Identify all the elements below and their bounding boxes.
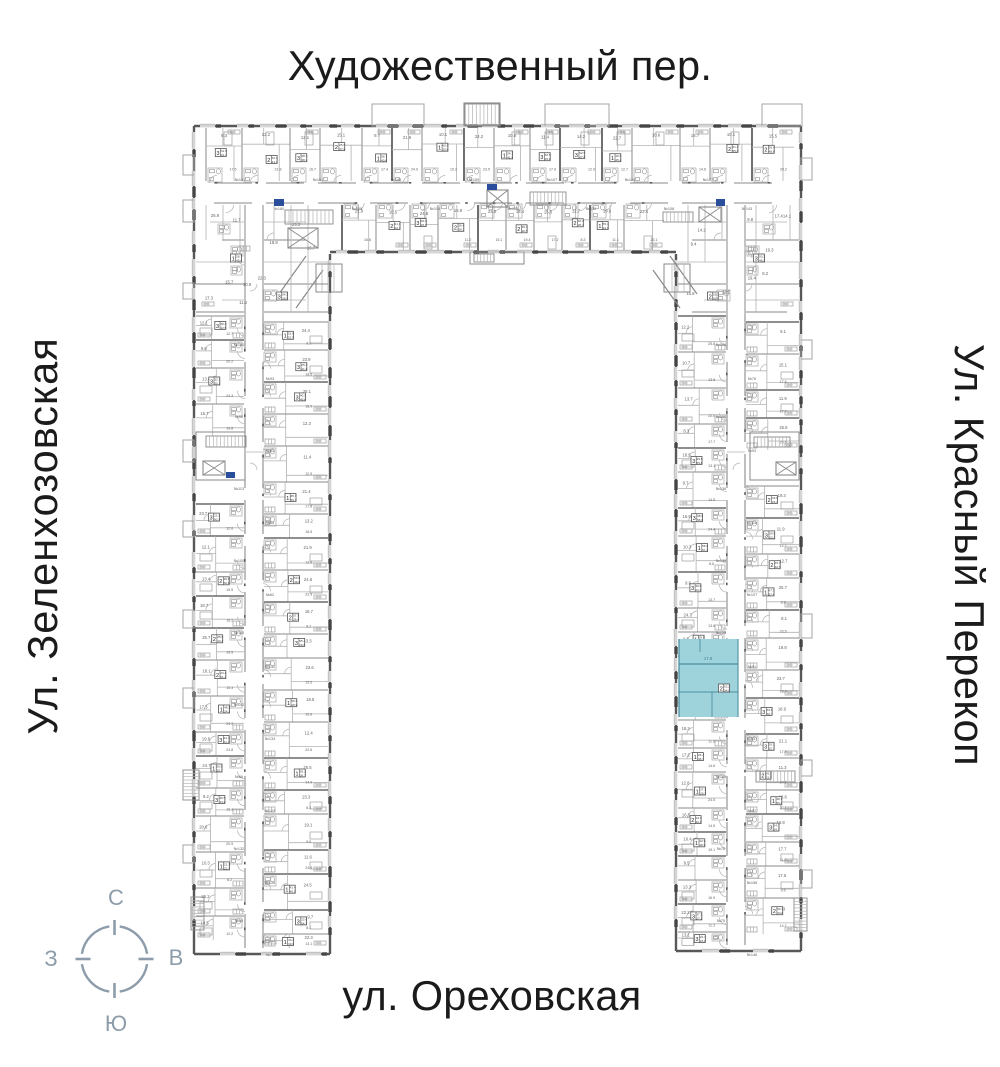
- svg-text:16.1: 16.1: [226, 807, 233, 811]
- svg-text:19.3: 19.3: [765, 248, 774, 253]
- svg-text:8.1: 8.1: [781, 616, 787, 621]
- svg-text:21.1: 21.1: [779, 738, 788, 743]
- svg-text:24.6: 24.6: [304, 577, 313, 582]
- svg-text:9.4: 9.4: [691, 241, 697, 246]
- svg-text:8.2: 8.2: [762, 271, 768, 276]
- svg-text:19.8: 19.8: [226, 427, 233, 431]
- svg-text:9.3: 9.3: [221, 133, 227, 138]
- svg-text:13.1: 13.1: [682, 933, 691, 938]
- svg-text:17.9: 17.9: [549, 167, 556, 171]
- svg-text:15.8: 15.8: [686, 291, 695, 296]
- svg-text:14.6: 14.6: [699, 167, 706, 171]
- svg-text:19.8: 19.8: [779, 645, 788, 650]
- svg-text:12.1: 12.1: [200, 320, 209, 325]
- svg-text:№148: №148: [391, 178, 401, 182]
- svg-text:3: 3: [215, 798, 218, 804]
- svg-text:39.7: 39.7: [773, 828, 779, 832]
- svg-text:9.5: 9.5: [781, 889, 786, 893]
- svg-text:3: 3: [764, 745, 767, 751]
- svg-text:12.1: 12.1: [202, 545, 211, 550]
- svg-text:29.6: 29.6: [299, 643, 305, 647]
- svg-text:19.4: 19.4: [524, 238, 531, 242]
- svg-text:11.2: 11.2: [239, 300, 248, 305]
- svg-text:54.5: 54.5: [724, 688, 730, 692]
- svg-text:19.1: 19.1: [304, 823, 313, 828]
- svg-text:№146: №146: [747, 953, 757, 957]
- svg-text:№142: №142: [234, 703, 244, 707]
- svg-text:23.9: 23.9: [302, 357, 311, 362]
- svg-text:9.7: 9.7: [683, 481, 689, 486]
- svg-text:24.8: 24.8: [420, 211, 429, 216]
- svg-text:1: 1: [296, 771, 299, 777]
- svg-text:10.7: 10.7: [682, 361, 691, 366]
- svg-text:2: 2: [290, 578, 293, 584]
- svg-text:56.7: 56.7: [290, 498, 296, 502]
- svg-text:25.8: 25.8: [545, 157, 551, 161]
- svg-text:57.4: 57.4: [702, 548, 708, 552]
- svg-text:11.4: 11.4: [541, 135, 550, 140]
- svg-text:№107: №107: [547, 178, 557, 182]
- svg-text:18.9: 18.9: [305, 405, 312, 409]
- svg-text:№132: №132: [586, 207, 596, 211]
- svg-text:2: 2: [219, 579, 222, 585]
- svg-text:3: 3: [210, 379, 213, 385]
- svg-text:2: 2: [454, 226, 457, 232]
- svg-text:32.7: 32.7: [767, 712, 773, 716]
- svg-text:23.9: 23.9: [488, 209, 497, 214]
- svg-text:15.5: 15.5: [305, 681, 312, 685]
- svg-text:11.3: 11.3: [779, 765, 788, 770]
- svg-text:№83: №83: [266, 449, 274, 453]
- svg-text:13.7: 13.7: [685, 397, 694, 402]
- svg-text:1: 1: [764, 590, 767, 596]
- svg-text:19.3: 19.3: [778, 493, 787, 498]
- svg-text:12.3: 12.3: [303, 421, 312, 426]
- svg-text:Ю: Ю: [105, 1011, 127, 1036]
- svg-text:2: 2: [691, 818, 694, 824]
- svg-text:19.5: 19.5: [226, 651, 233, 655]
- svg-text:24.5: 24.5: [708, 798, 715, 802]
- svg-text:24.7: 24.7: [695, 588, 701, 592]
- svg-text:22.7: 22.7: [613, 136, 622, 141]
- svg-text:1: 1: [287, 701, 290, 707]
- svg-text:23.7: 23.7: [777, 676, 786, 681]
- svg-text:3: 3: [278, 294, 281, 300]
- svg-text:11.6: 11.6: [708, 739, 715, 743]
- svg-text:32.3: 32.3: [769, 747, 775, 751]
- svg-text:14.1: 14.1: [783, 214, 792, 219]
- svg-text:3: 3: [295, 641, 298, 647]
- svg-text:20.1: 20.1: [780, 806, 787, 810]
- svg-text:№132: №132: [234, 847, 244, 851]
- svg-text:1: 1: [377, 156, 380, 162]
- svg-text:9.7: 9.7: [307, 914, 313, 919]
- svg-text:46.5: 46.5: [775, 565, 781, 569]
- svg-text:2: 2: [773, 909, 776, 915]
- svg-text:1: 1: [698, 546, 701, 552]
- svg-text:44.6: 44.6: [603, 226, 609, 230]
- svg-text:59.4: 59.4: [776, 801, 782, 805]
- svg-text:18.8: 18.8: [306, 697, 315, 702]
- svg-text:2: 2: [709, 294, 712, 300]
- svg-text:9.7: 9.7: [374, 133, 380, 138]
- svg-text:№108: №108: [664, 207, 674, 211]
- svg-text:16.2: 16.2: [226, 619, 233, 623]
- svg-text:17.5: 17.5: [230, 167, 237, 171]
- svg-text:11.2: 11.2: [465, 238, 472, 242]
- svg-text:49.4: 49.4: [236, 258, 242, 262]
- svg-text:3: 3: [219, 738, 222, 744]
- svg-text:17.8: 17.8: [704, 656, 713, 661]
- svg-text:2: 2: [335, 145, 338, 151]
- svg-text:22.2: 22.2: [262, 132, 271, 137]
- svg-text:9.5: 9.5: [684, 860, 690, 865]
- svg-text:13.1: 13.1: [305, 942, 312, 946]
- svg-text:22.9: 22.9: [305, 593, 312, 597]
- svg-text:17.6: 17.6: [780, 380, 787, 384]
- svg-text:1: 1: [694, 755, 697, 761]
- svg-text:3: 3: [691, 586, 694, 592]
- svg-text:1: 1: [438, 146, 441, 152]
- svg-text:54.7: 54.7: [301, 921, 307, 925]
- svg-text:42.5: 42.5: [220, 326, 226, 330]
- svg-text:10.3: 10.3: [202, 861, 211, 866]
- svg-text:28.9: 28.9: [291, 703, 297, 707]
- svg-text:12.7: 12.7: [780, 544, 787, 548]
- svg-text:20.9: 20.9: [226, 842, 233, 846]
- svg-text:22.3: 22.3: [305, 935, 314, 940]
- svg-text:15.1: 15.1: [337, 133, 346, 138]
- svg-text:9.2: 9.2: [203, 794, 209, 799]
- svg-text:24.5: 24.5: [304, 883, 313, 888]
- svg-text:8.3: 8.3: [581, 238, 586, 242]
- svg-text:18.9: 18.9: [780, 689, 787, 693]
- svg-text:3: 3: [540, 155, 543, 161]
- svg-text:12.7: 12.7: [572, 208, 581, 213]
- svg-text:2: 2: [289, 616, 292, 622]
- svg-text:12.7: 12.7: [621, 167, 628, 171]
- svg-text:34.8: 34.8: [777, 911, 783, 915]
- svg-text:Ул. Красный Перекоп: Ул. Красный Перекоп: [946, 344, 993, 766]
- svg-text:3: 3: [692, 459, 695, 465]
- svg-text:18.9: 18.9: [778, 707, 787, 712]
- svg-text:№91: №91: [748, 665, 756, 669]
- svg-text:17.2: 17.2: [682, 752, 691, 757]
- svg-text:№116: №116: [747, 521, 757, 525]
- svg-text:3: 3: [296, 395, 299, 401]
- svg-text:12.1: 12.1: [301, 135, 310, 140]
- svg-text:2: 2: [764, 148, 767, 154]
- svg-text:3: 3: [692, 914, 695, 920]
- svg-text:27.2: 27.2: [696, 916, 702, 920]
- svg-text:17.3: 17.3: [199, 705, 208, 710]
- svg-text:11.9: 11.9: [779, 396, 788, 401]
- svg-text:12.7: 12.7: [226, 332, 233, 336]
- svg-text:23.5: 23.5: [483, 167, 490, 171]
- svg-text:25.3: 25.3: [578, 223, 584, 227]
- svg-text:16.7: 16.7: [691, 133, 700, 138]
- svg-text:38.1: 38.1: [301, 158, 307, 162]
- svg-text:14.2: 14.2: [698, 227, 707, 232]
- svg-text:8.2: 8.2: [306, 625, 311, 629]
- svg-text:23.6: 23.6: [700, 939, 706, 943]
- svg-text:51.4: 51.4: [220, 675, 226, 679]
- svg-text:1: 1: [220, 864, 223, 870]
- svg-text:№98: №98: [235, 415, 243, 419]
- svg-text:1: 1: [284, 940, 287, 946]
- svg-text:Художественный пер.: Художественный пер.: [288, 42, 712, 89]
- svg-text:25.8: 25.8: [708, 342, 715, 346]
- svg-text:10.6: 10.6: [305, 713, 312, 717]
- svg-text:17.3: 17.3: [205, 296, 214, 301]
- svg-text:2: 2: [770, 563, 773, 569]
- svg-text:13.3: 13.3: [683, 884, 692, 889]
- svg-text:12.2: 12.2: [226, 932, 233, 936]
- svg-text:19.1: 19.1: [708, 848, 715, 852]
- svg-text:22.2: 22.2: [681, 910, 690, 915]
- svg-text:16.9: 16.9: [683, 514, 692, 519]
- svg-text:41.4: 41.4: [272, 160, 278, 164]
- svg-text:31.4: 31.4: [224, 740, 230, 744]
- svg-text:2: 2: [720, 686, 723, 692]
- svg-text:№123: №123: [265, 809, 275, 813]
- svg-text:№143: №143: [742, 207, 752, 211]
- svg-text:№156: №156: [747, 881, 757, 885]
- svg-text:48.9: 48.9: [699, 843, 705, 847]
- svg-text:№151: №151: [313, 178, 323, 182]
- svg-text:33.2: 33.2: [219, 800, 225, 804]
- svg-text:25.2: 25.2: [201, 894, 210, 899]
- svg-text:№159: №159: [469, 178, 479, 182]
- svg-text:15.3: 15.3: [226, 686, 233, 690]
- svg-text:13.4: 13.4: [202, 576, 211, 581]
- svg-text:19.4: 19.4: [748, 275, 757, 280]
- svg-text:10.3: 10.3: [683, 545, 692, 550]
- svg-text:45.2: 45.2: [615, 158, 621, 162]
- svg-text:42.6: 42.6: [696, 820, 702, 824]
- svg-text:22.7: 22.7: [394, 226, 400, 230]
- svg-text:8.2: 8.2: [227, 878, 232, 882]
- svg-text:2: 2: [517, 227, 520, 233]
- svg-text:46.8: 46.8: [294, 580, 300, 584]
- svg-text:3: 3: [693, 516, 696, 522]
- svg-text:38.5: 38.5: [282, 296, 288, 300]
- svg-text:3: 3: [217, 151, 220, 157]
- svg-text:9.1: 9.1: [780, 329, 786, 334]
- svg-text:№128: №128: [716, 631, 726, 635]
- svg-text:ул. Ореховская: ул. Ореховская: [342, 972, 641, 1019]
- svg-text:24.7: 24.7: [684, 612, 693, 617]
- svg-text:18.7: 18.7: [200, 603, 209, 608]
- svg-text:19.6: 19.6: [603, 208, 612, 213]
- svg-text:16.9: 16.9: [708, 896, 715, 900]
- svg-text:46.2: 46.2: [759, 258, 765, 262]
- svg-text:21.9: 21.9: [304, 545, 313, 550]
- svg-text:22.6: 22.6: [305, 748, 312, 752]
- svg-text:1: 1: [284, 334, 287, 340]
- svg-text:2: 2: [728, 147, 731, 153]
- svg-text:3: 3: [216, 324, 219, 330]
- svg-text:14.5: 14.5: [708, 498, 715, 502]
- svg-text:11.9: 11.9: [777, 527, 786, 532]
- svg-text:20.2: 20.2: [226, 359, 233, 363]
- svg-text:8.3: 8.3: [306, 806, 311, 810]
- svg-text:21.9: 21.9: [403, 135, 412, 140]
- svg-text:№126: №126: [265, 881, 275, 885]
- svg-text:12.8: 12.8: [681, 781, 690, 786]
- svg-text:12.4: 12.4: [305, 731, 314, 736]
- svg-text:58.1: 58.1: [458, 228, 464, 232]
- svg-text:23.7: 23.7: [199, 511, 208, 516]
- svg-text:№125: №125: [716, 775, 726, 779]
- svg-text:15.5: 15.5: [769, 134, 778, 139]
- svg-text:11.6: 11.6: [304, 854, 313, 859]
- svg-text:1: 1: [696, 789, 699, 795]
- svg-text:8.3: 8.3: [683, 428, 689, 433]
- svg-text:3: 3: [297, 919, 300, 925]
- svg-text:№76: №76: [748, 377, 756, 381]
- svg-text:13.8: 13.8: [708, 378, 715, 382]
- svg-text:С: С: [108, 885, 124, 910]
- svg-text:9.1: 9.1: [306, 341, 311, 345]
- svg-text:3: 3: [696, 937, 699, 943]
- svg-text:№107: №107: [747, 593, 757, 597]
- svg-text:№66: №66: [235, 775, 243, 779]
- svg-text:24.7: 24.7: [202, 763, 211, 768]
- svg-text:55.3: 55.3: [732, 149, 738, 153]
- svg-text:36.7: 36.7: [300, 773, 306, 777]
- svg-text:24.8: 24.8: [226, 748, 233, 752]
- svg-text:52.5: 52.5: [288, 336, 294, 340]
- svg-text:15.7: 15.7: [200, 411, 209, 416]
- svg-text:55.1: 55.1: [214, 381, 220, 385]
- svg-text:11.7: 11.7: [233, 218, 242, 223]
- svg-text:40.8: 40.8: [381, 158, 387, 162]
- svg-text:13.1: 13.1: [708, 464, 715, 468]
- svg-text:35.8: 35.8: [442, 148, 448, 152]
- svg-text:2: 2: [390, 224, 393, 230]
- svg-text:16.3: 16.3: [682, 812, 691, 817]
- svg-text:22.4: 22.4: [640, 209, 649, 214]
- svg-text:№146: №146: [716, 343, 726, 347]
- svg-text:12.5: 12.5: [305, 472, 312, 476]
- svg-text:№132: №132: [265, 665, 275, 669]
- svg-text:12.9: 12.9: [588, 167, 595, 171]
- svg-text:№108: №108: [508, 207, 518, 211]
- svg-text:1: 1: [285, 888, 288, 894]
- svg-text:16.9: 16.9: [454, 208, 463, 213]
- svg-text:№137: №137: [747, 737, 757, 741]
- svg-text:№105: №105: [352, 207, 362, 211]
- svg-text:23.3: 23.3: [226, 722, 233, 726]
- svg-text:1: 1: [695, 841, 698, 847]
- svg-text:3: 3: [210, 516, 213, 522]
- svg-text:№62: №62: [266, 593, 274, 597]
- svg-text:12.2: 12.2: [681, 325, 690, 330]
- svg-text:18.1: 18.1: [203, 669, 212, 674]
- svg-text:№115: №115: [234, 631, 244, 635]
- svg-text:8.8: 8.8: [781, 601, 786, 605]
- svg-text:37.9: 37.9: [339, 147, 345, 151]
- svg-text:9.8: 9.8: [747, 217, 753, 222]
- svg-text:№93: №93: [266, 377, 274, 381]
- svg-text:1: 1: [220, 707, 223, 713]
- svg-text:23.6: 23.6: [306, 665, 315, 670]
- svg-text:9.6: 9.6: [306, 840, 311, 844]
- svg-text:10.8: 10.8: [508, 133, 517, 138]
- svg-text:№75: №75: [266, 953, 274, 957]
- svg-text:14.6: 14.6: [708, 764, 715, 768]
- svg-text:48.6: 48.6: [769, 150, 775, 154]
- svg-text:3: 3: [297, 156, 300, 162]
- svg-text:17.7: 17.7: [778, 846, 787, 851]
- svg-text:10.9: 10.9: [243, 282, 252, 287]
- svg-text:20.2: 20.2: [780, 167, 787, 171]
- svg-text:25.9: 25.9: [421, 223, 427, 227]
- svg-text:55.8: 55.8: [696, 461, 702, 465]
- svg-text:15.1: 15.1: [779, 363, 788, 368]
- svg-text:12.6: 12.6: [226, 527, 233, 531]
- svg-text:1: 1: [212, 766, 215, 772]
- svg-text:19.2: 19.2: [450, 167, 457, 171]
- svg-text:10.5: 10.5: [389, 210, 398, 215]
- svg-text:23.1: 23.1: [772, 500, 778, 504]
- svg-text:№180: №180: [274, 207, 284, 211]
- svg-text:24.3: 24.3: [224, 709, 230, 713]
- svg-text:8.6: 8.6: [709, 562, 714, 566]
- svg-text:2: 2: [574, 221, 577, 227]
- svg-text:3: 3: [297, 365, 300, 371]
- svg-text:11.1: 11.1: [612, 238, 619, 242]
- svg-text:23.3: 23.3: [302, 794, 311, 799]
- svg-text:2: 2: [216, 673, 219, 679]
- svg-text:№150: №150: [716, 415, 726, 419]
- svg-text:19.8: 19.8: [202, 736, 211, 741]
- svg-text:3: 3: [416, 221, 419, 227]
- svg-text:21.8: 21.8: [275, 167, 282, 171]
- svg-text:17.7: 17.7: [780, 409, 787, 413]
- svg-text:19.5: 19.5: [226, 588, 233, 592]
- svg-text:18.5: 18.5: [305, 530, 312, 534]
- svg-text:25.7: 25.7: [202, 635, 211, 640]
- svg-text:№75: №75: [717, 919, 725, 923]
- svg-text:22.3: 22.3: [258, 275, 267, 280]
- svg-text:1: 1: [611, 156, 614, 162]
- svg-text:10.1: 10.1: [727, 132, 736, 137]
- svg-text:23.5: 23.5: [780, 629, 787, 633]
- svg-text:11.3: 11.3: [708, 923, 715, 927]
- svg-text:24.3: 24.3: [226, 394, 233, 398]
- svg-text:20.7: 20.7: [216, 768, 222, 772]
- svg-text:53.2: 53.2: [769, 535, 775, 539]
- svg-text:13.7: 13.7: [708, 598, 715, 602]
- svg-text:56.6: 56.6: [697, 518, 703, 522]
- svg-text:3: 3: [762, 710, 765, 716]
- svg-text:16.4: 16.4: [683, 836, 692, 841]
- svg-text:9.8: 9.8: [201, 346, 207, 351]
- svg-text:14.9: 14.9: [305, 781, 312, 785]
- svg-text:10.1: 10.1: [439, 132, 448, 137]
- svg-text:38.7: 38.7: [698, 757, 704, 761]
- svg-text:В: В: [169, 945, 184, 970]
- svg-text:21.6: 21.6: [301, 367, 307, 371]
- svg-text:З: З: [44, 946, 57, 971]
- svg-text:20.5: 20.5: [522, 229, 528, 233]
- svg-text:3: 3: [769, 826, 772, 832]
- svg-text:1: 1: [598, 224, 601, 230]
- svg-text:18.3: 18.3: [682, 726, 691, 731]
- svg-text:39.9: 39.9: [288, 942, 294, 946]
